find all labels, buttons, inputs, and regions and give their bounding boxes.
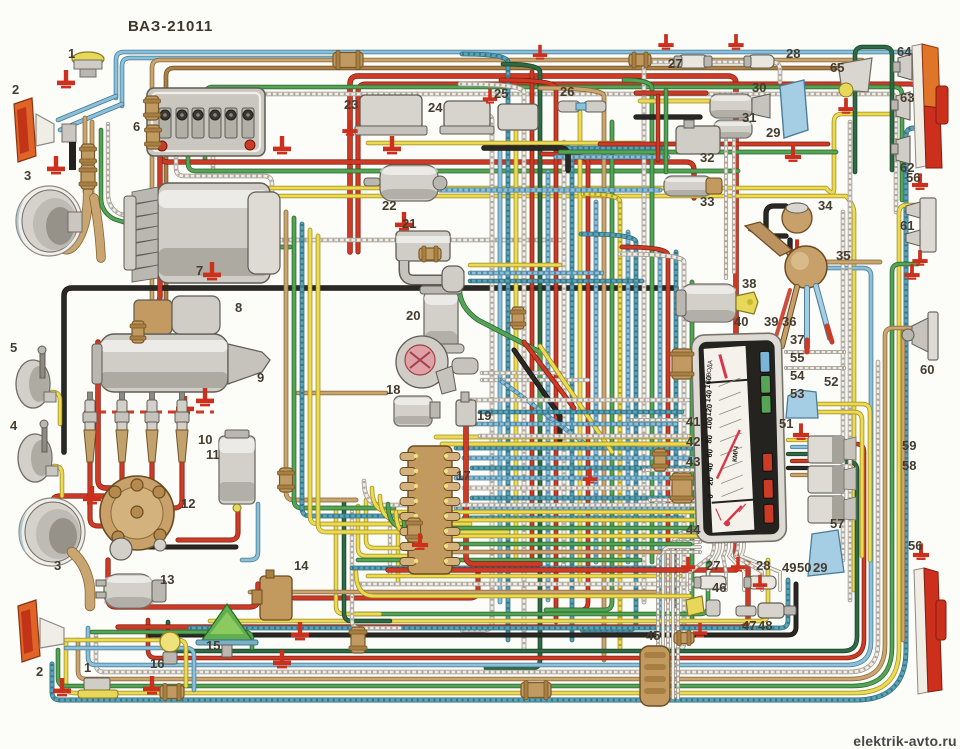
- svg-text:3: 3: [54, 558, 61, 573]
- svg-text:elektrik-avto.ru: elektrik-avto.ru: [853, 733, 957, 749]
- svg-text:1: 1: [84, 660, 91, 675]
- svg-text:11: 11: [206, 447, 220, 462]
- svg-text:46: 46: [712, 580, 726, 595]
- svg-text:27: 27: [706, 558, 720, 573]
- svg-text:1: 1: [68, 46, 75, 61]
- svg-text:61: 61: [900, 218, 914, 233]
- svg-text:53: 53: [790, 386, 804, 401]
- svg-text:31: 31: [742, 110, 756, 125]
- svg-text:23: 23: [344, 97, 358, 112]
- svg-text:22: 22: [382, 198, 396, 213]
- svg-text:6: 6: [133, 119, 140, 134]
- svg-text:12: 12: [181, 496, 195, 511]
- svg-text:10: 10: [198, 432, 212, 447]
- svg-text:55: 55: [790, 350, 804, 365]
- svg-text:5: 5: [10, 340, 17, 355]
- svg-text:45: 45: [646, 628, 660, 643]
- svg-text:52: 52: [824, 374, 838, 389]
- svg-text:140: 140: [703, 389, 714, 403]
- svg-text:48: 48: [758, 618, 772, 633]
- svg-text:160: 160: [703, 375, 714, 389]
- svg-text:24: 24: [428, 100, 443, 115]
- svg-text:59: 59: [902, 438, 916, 453]
- svg-text:58: 58: [902, 458, 916, 473]
- svg-text:29: 29: [813, 560, 827, 575]
- svg-text:100: 100: [704, 416, 715, 430]
- svg-text:47: 47: [742, 618, 756, 633]
- svg-text:4: 4: [10, 418, 18, 433]
- svg-text:37: 37: [790, 332, 804, 347]
- svg-text:39: 39: [764, 314, 778, 329]
- svg-text:33: 33: [700, 194, 714, 209]
- svg-text:64: 64: [897, 44, 912, 59]
- svg-text:13: 13: [160, 572, 174, 587]
- svg-text:2: 2: [36, 664, 43, 679]
- svg-text:50: 50: [797, 560, 811, 575]
- svg-text:57: 57: [830, 516, 844, 531]
- svg-text:32: 32: [700, 150, 714, 165]
- svg-text:80: 80: [704, 434, 714, 444]
- svg-text:2: 2: [12, 82, 19, 97]
- svg-text:36: 36: [782, 314, 796, 329]
- svg-text:60: 60: [920, 362, 934, 377]
- svg-text:26: 26: [560, 84, 574, 99]
- svg-text:54: 54: [790, 368, 805, 383]
- svg-text:19: 19: [477, 408, 491, 423]
- svg-text:27: 27: [668, 56, 682, 71]
- svg-text:42: 42: [686, 434, 700, 449]
- svg-text:120: 120: [703, 403, 714, 417]
- svg-text:29: 29: [766, 125, 780, 140]
- svg-text:30: 30: [752, 80, 766, 95]
- svg-text:ВАЗ-21011: ВАЗ-21011: [128, 18, 213, 35]
- svg-text:63: 63: [900, 90, 914, 105]
- svg-text:43: 43: [686, 454, 700, 469]
- svg-text:65: 65: [830, 60, 844, 75]
- svg-text:56: 56: [908, 538, 922, 553]
- svg-text:14: 14: [294, 558, 309, 573]
- svg-text:28: 28: [756, 558, 770, 573]
- svg-text:34: 34: [818, 198, 833, 213]
- svg-text:40: 40: [705, 462, 715, 472]
- svg-text:44: 44: [686, 522, 701, 537]
- svg-text:16: 16: [150, 656, 164, 671]
- svg-text:28: 28: [786, 46, 800, 61]
- svg-text:20: 20: [705, 476, 715, 486]
- svg-text:62: 62: [900, 160, 914, 175]
- svg-text:40: 40: [734, 314, 748, 329]
- svg-text:25: 25: [494, 86, 508, 101]
- svg-text:3: 3: [24, 168, 31, 183]
- svg-text:8: 8: [235, 300, 242, 315]
- svg-text:35: 35: [836, 248, 850, 263]
- svg-text:18: 18: [386, 382, 400, 397]
- svg-text:7: 7: [196, 263, 203, 278]
- svg-text:60: 60: [705, 448, 715, 458]
- svg-text:20: 20: [406, 308, 420, 323]
- svg-text:15: 15: [206, 638, 220, 653]
- svg-text:21: 21: [402, 216, 416, 231]
- svg-text:49: 49: [782, 560, 796, 575]
- svg-text:51: 51: [779, 416, 793, 431]
- svg-text:38: 38: [742, 276, 756, 291]
- svg-text:9: 9: [257, 370, 264, 385]
- svg-text:41: 41: [686, 414, 700, 429]
- svg-text:17: 17: [456, 468, 470, 483]
